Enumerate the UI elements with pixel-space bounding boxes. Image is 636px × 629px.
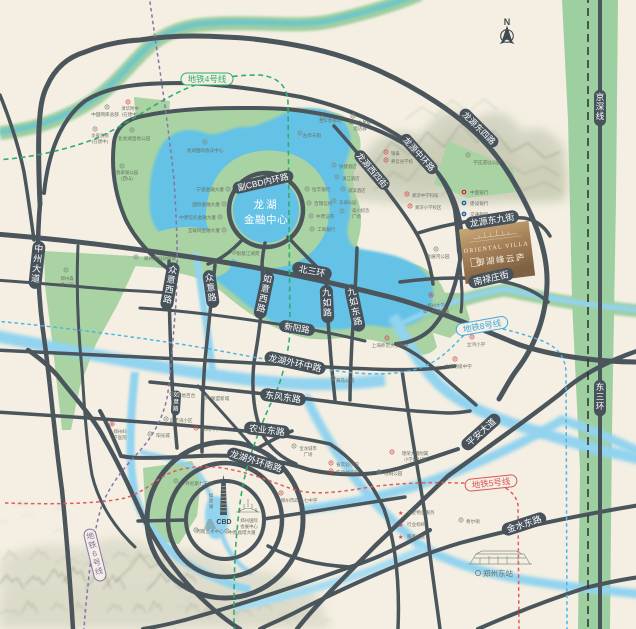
svg-text:(在建中): (在建中) xyxy=(92,138,109,145)
svg-text:小学幼儿园: 小学幼儿园 xyxy=(404,456,427,463)
svg-text:郑州妇: 郑州妇 xyxy=(113,428,126,435)
svg-text:郑州市妇幼保健: 郑州市妇幼保健 xyxy=(144,255,177,262)
svg-text:建设银行: 建设银行 xyxy=(470,200,489,207)
svg-text:恒丰银行: 恒丰银行 xyxy=(312,186,331,193)
svg-text:地铁4号线: 地铁4号线 xyxy=(188,74,227,84)
svg-text:漓江酒店: 漓江酒店 xyxy=(342,175,360,182)
svg-text:★: ★ xyxy=(398,534,403,541)
svg-text:快捷酒店: 快捷酒店 xyxy=(339,163,357,170)
svg-text:郑济中学科技: 郑济中学科技 xyxy=(412,192,439,199)
svg-text:北龙湖湿地公园: 北龙湖湿地公园 xyxy=(118,135,151,142)
svg-text:CBD: CBD xyxy=(216,519,231,526)
svg-text:龙湖初级中学: 龙湖初级中学 xyxy=(444,363,472,370)
svg-text:省实验小学: 省实验小学 xyxy=(336,461,359,468)
svg-text:酒店群: 酒店群 xyxy=(353,125,367,132)
svg-text:左岸金融岛: 左岸金融岛 xyxy=(319,117,342,124)
svg-text:养云谷学校: 养云谷学校 xyxy=(391,158,414,165)
svg-text:郑州东站: 郑州东站 xyxy=(483,568,513,578)
svg-text:五星物业服务: 五星物业服务 xyxy=(407,509,435,516)
svg-text:银基江湖苑: 银基江湖苑 xyxy=(237,250,260,257)
svg-text:(西山): (西山) xyxy=(121,175,133,182)
svg-text:东三环: 东三环 xyxy=(596,382,605,411)
svg-text:★: ★ xyxy=(398,510,403,517)
svg-text:实验幼儿园: 实验幼儿园 xyxy=(336,469,359,476)
svg-text:双湖六星级: 双湖六星级 xyxy=(349,119,372,126)
svg-text:东湖公园: 东湖公园 xyxy=(339,199,357,206)
svg-text:交通银行: 交通银行 xyxy=(470,211,489,218)
svg-text:郑州森: 郑州森 xyxy=(60,275,74,282)
svg-text:希尔顿: 希尔顿 xyxy=(466,518,480,525)
svg-text:河南艺术中心: 河南艺术中心 xyxy=(196,528,224,535)
svg-text:会展中心: 会展中心 xyxy=(240,523,258,530)
svg-text:郑州国际: 郑州国际 xyxy=(240,517,258,524)
svg-text:中原福塔大厦: 中原福塔大厦 xyxy=(228,529,256,536)
svg-text:联盟新城: 联盟新城 xyxy=(211,395,230,402)
svg-text:中国网库总部: 中国网库总部 xyxy=(91,111,119,118)
svg-text:工商银行: 工商银行 xyxy=(317,226,336,233)
svg-text:互联网金融大厦: 互联网金融大厦 xyxy=(188,227,221,234)
svg-text:★: ★ xyxy=(398,522,403,529)
svg-text:如意湖: 如意湖 xyxy=(209,492,214,510)
svg-text:郑州市四十七中学: 郑州市四十七中学 xyxy=(281,497,318,504)
svg-text:九如路: 九如路 xyxy=(322,287,333,317)
svg-text:国际金融大厦: 国际金融大厦 xyxy=(192,201,220,208)
svg-text:郑济小学校区: 郑济小学校区 xyxy=(415,204,442,211)
svg-text:蓝堡湾小区: 蓝堡湾小区 xyxy=(170,417,193,424)
svg-text:龙湖国际会议中心: 龙湖国际会议中心 xyxy=(187,147,224,154)
svg-text:绿地百合: 绿地百合 xyxy=(177,392,196,399)
svg-text:银泰: 银泰 xyxy=(391,150,400,157)
svg-text:龙泉总部: 龙泉总部 xyxy=(91,132,109,139)
svg-text:广场: 广场 xyxy=(352,213,361,220)
svg-text:高川纪念: 高川纪念 xyxy=(352,207,370,214)
svg-text:中国银行: 中国银行 xyxy=(470,189,489,196)
svg-text:郑州八中: 郑州八中 xyxy=(201,426,220,433)
svg-text:郑州大学: 郑州大学 xyxy=(427,302,445,309)
svg-text:(在建中): (在建中) xyxy=(122,111,139,118)
svg-text:清华附中: 清华附中 xyxy=(121,105,139,112)
svg-text:行业标杆: 行业标杆 xyxy=(407,521,426,528)
svg-text:翡翠湖公园: 翡翠湖公园 xyxy=(116,169,139,176)
svg-text:梧桐公园: 梧桐公园 xyxy=(384,470,403,477)
svg-text:湖滨酒店: 湖滨酒店 xyxy=(348,187,366,194)
svg-text:丹尼斯七天地: 丹尼斯七天地 xyxy=(185,480,213,487)
svg-text:左岸天街: 左岸天街 xyxy=(303,132,322,139)
svg-text:学庄遗址公园: 学庄遗址公园 xyxy=(473,159,501,166)
svg-text:服务之星: 服务之星 xyxy=(407,533,426,540)
svg-text:龙湖: 龙湖 xyxy=(254,198,279,211)
svg-text:中原证券: 中原证券 xyxy=(316,213,335,220)
svg-text:产医院: 产医院 xyxy=(113,434,127,441)
svg-text:百瑞信托: 百瑞信托 xyxy=(314,200,333,207)
svg-text:宁波金融大厦: 宁波金融大厦 xyxy=(196,186,224,193)
svg-text:林公园: 林公园 xyxy=(60,281,74,288)
svg-text:第一附属医院: 第一附属医院 xyxy=(423,308,450,315)
svg-text:立鸿小学: 立鸿小学 xyxy=(467,341,486,348)
svg-text:会展河公园: 会展河公园 xyxy=(427,253,450,260)
svg-text:上海师范大学附中: 上海师范大学附中 xyxy=(372,342,409,349)
svg-text:锦荣大境附属: 锦荣大境附属 xyxy=(402,450,428,457)
svg-text:中原信托金融大厦: 中原信托金融大厦 xyxy=(179,214,216,221)
svg-text:京深线: 京深线 xyxy=(596,92,605,121)
svg-text:金融中心: 金融中心 xyxy=(244,213,288,226)
svg-text:海马公园: 海马公园 xyxy=(336,377,355,384)
svg-text:阳光城: 阳光城 xyxy=(156,432,170,439)
svg-text:宝龙城市: 宝龙城市 xyxy=(299,445,317,452)
svg-text:广场: 广场 xyxy=(304,451,313,458)
